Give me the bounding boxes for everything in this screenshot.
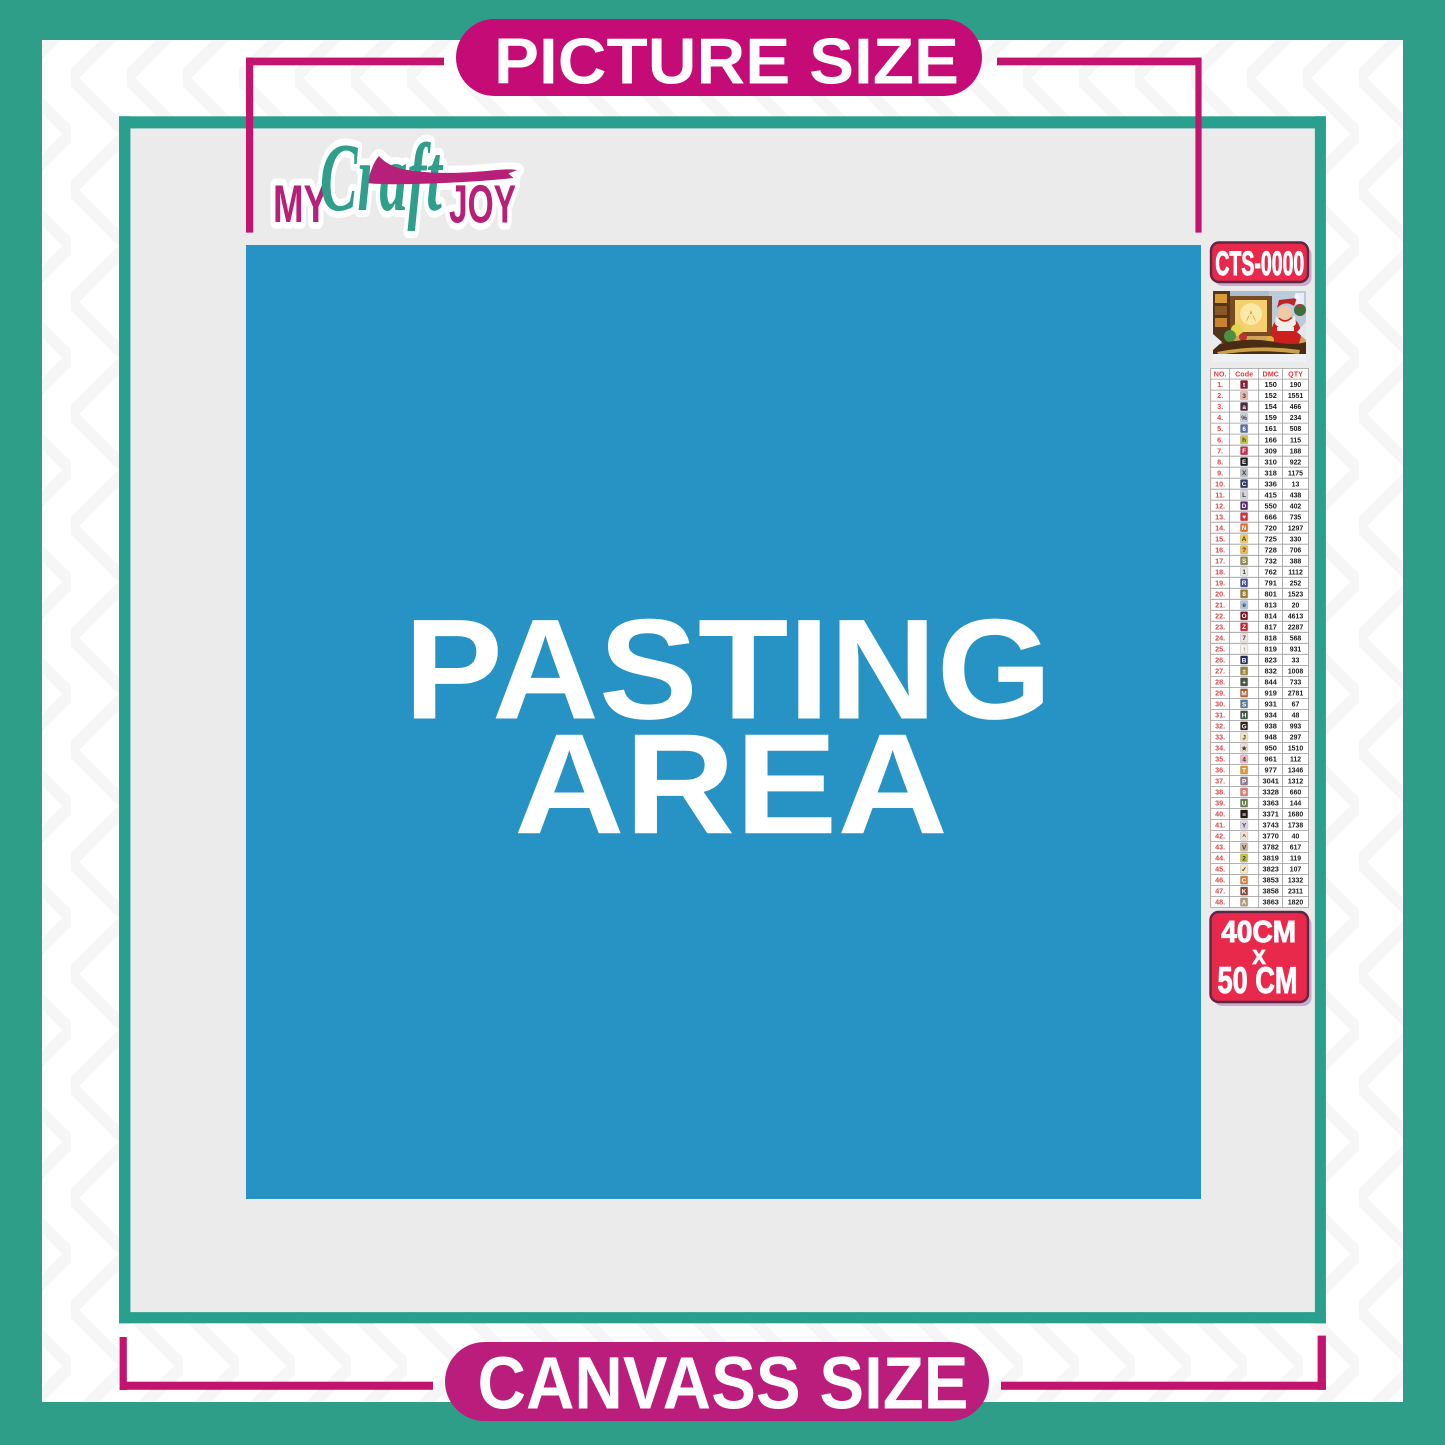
svg-text:1: 1 (1242, 569, 1246, 576)
svg-text:844: 844 (1265, 678, 1278, 687)
svg-text:950: 950 (1265, 744, 1277, 753)
svg-text:21.: 21. (1215, 600, 1225, 609)
svg-text:388: 388 (1290, 558, 1302, 565)
svg-text:3853: 3853 (1262, 876, 1278, 885)
svg-text:41.: 41. (1215, 821, 1225, 830)
svg-text:Y: Y (1242, 822, 1247, 829)
svg-text:48.: 48. (1215, 898, 1225, 907)
svg-text:336: 336 (1265, 479, 1277, 488)
svg-text:≡: ≡ (1242, 811, 1246, 818)
svg-text:QTY: QTY (1288, 369, 1303, 378)
svg-text:309: 309 (1265, 446, 1277, 455)
svg-text:791: 791 (1265, 578, 1277, 587)
svg-text:2: 2 (1242, 855, 1246, 862)
svg-text:1551: 1551 (1288, 393, 1303, 400)
svg-text:27.: 27. (1215, 667, 1225, 676)
svg-text:144: 144 (1290, 801, 1302, 808)
svg-text:35.: 35. (1215, 755, 1225, 764)
svg-text:3863: 3863 (1262, 898, 1278, 907)
svg-text:415: 415 (1265, 490, 1277, 499)
svg-text:9.: 9. (1217, 468, 1223, 477)
svg-text:1820: 1820 (1288, 900, 1303, 907)
svg-text:A: A (1242, 900, 1247, 907)
svg-text:2781: 2781 (1288, 691, 1303, 698)
svg-text:46.: 46. (1215, 876, 1225, 885)
svg-text:9: 9 (1242, 789, 1246, 796)
svg-text:Code: Code (1235, 369, 1253, 378)
svg-text:4.: 4. (1217, 413, 1223, 422)
svg-text:F: F (1242, 448, 1246, 455)
svg-text:40: 40 (1292, 834, 1300, 841)
svg-text:P: P (1242, 778, 1247, 785)
svg-text:C: C (1242, 878, 1247, 885)
svg-text:h: h (1242, 437, 1246, 444)
svg-text:%: % (1241, 415, 1247, 422)
svg-text:112: 112 (1290, 757, 1301, 764)
svg-text:+: + (1242, 679, 1246, 686)
svg-text:PICTURE SIZE: PICTURE SIZE (494, 25, 959, 98)
svg-text:318: 318 (1265, 468, 1277, 477)
svg-text:234: 234 (1290, 415, 1302, 422)
svg-text:119: 119 (1290, 856, 1301, 863)
svg-text:45.: 45. (1215, 865, 1225, 874)
svg-text:23.: 23. (1215, 622, 1225, 631)
svg-text:3: 3 (1242, 393, 1246, 400)
svg-text:42.: 42. (1215, 832, 1225, 841)
svg-text:14.: 14. (1215, 523, 1225, 532)
svg-text:1738: 1738 (1288, 823, 1303, 830)
svg-text:★: ★ (1240, 745, 1247, 752)
svg-text:37.: 37. (1215, 777, 1225, 786)
svg-text:115: 115 (1290, 437, 1301, 444)
svg-text:814: 814 (1265, 611, 1278, 620)
svg-text:✓: ✓ (1241, 866, 1246, 873)
svg-text:931: 931 (1290, 646, 1302, 653)
svg-text:617: 617 (1290, 845, 1302, 852)
svg-text:30.: 30. (1215, 700, 1225, 709)
svg-text:R: R (1242, 580, 1247, 587)
svg-text:V: V (1242, 844, 1247, 851)
svg-text:297: 297 (1290, 735, 1302, 742)
svg-text:1346: 1346 (1288, 768, 1303, 775)
svg-text:13.: 13. (1215, 512, 1225, 521)
svg-text:15.: 15. (1215, 534, 1225, 543)
svg-text:735: 735 (1290, 514, 1302, 521)
svg-text:40CM: 40CM (1221, 914, 1296, 949)
svg-text:161: 161 (1265, 424, 1277, 433)
svg-text:1112: 1112 (1288, 569, 1303, 576)
svg-text:28.: 28. (1215, 678, 1225, 687)
svg-text:1175: 1175 (1288, 470, 1303, 477)
svg-text:26.: 26. (1215, 656, 1225, 665)
svg-text:2287: 2287 (1288, 624, 1303, 631)
svg-text:E: E (1242, 459, 1247, 466)
svg-text:C: C (1242, 481, 1247, 488)
svg-text:466: 466 (1290, 404, 1302, 411)
svg-text:1.: 1. (1217, 380, 1223, 389)
svg-text:166: 166 (1265, 435, 1277, 444)
svg-text:922: 922 (1290, 459, 1302, 466)
svg-text:813: 813 (1265, 600, 1277, 609)
svg-text:G: G (1242, 723, 1247, 730)
svg-text:819: 819 (1265, 644, 1277, 653)
svg-text:♥: ♥ (1242, 514, 1246, 521)
svg-text:1008: 1008 (1288, 669, 1303, 676)
svg-text:666: 666 (1265, 512, 1277, 521)
svg-text:993: 993 (1290, 724, 1302, 731)
svg-text:43.: 43. (1215, 843, 1225, 852)
svg-text:±: ± (1242, 668, 1246, 675)
svg-text:17.: 17. (1215, 556, 1225, 565)
svg-text:O: O (1242, 613, 1247, 620)
svg-text:934: 934 (1265, 711, 1278, 720)
svg-text:J: J (1242, 734, 1246, 741)
svg-text:JOY: JOY (449, 175, 516, 235)
svg-text:↑: ↑ (1242, 646, 1245, 653)
svg-text:6: 6 (1242, 426, 1246, 433)
svg-text:330: 330 (1290, 536, 1302, 543)
svg-text:4613: 4613 (1288, 613, 1303, 620)
svg-text:47.: 47. (1215, 887, 1225, 896)
svg-text:919: 919 (1265, 689, 1277, 698)
svg-text:AREA: AREA (514, 705, 948, 864)
svg-text:8: 8 (1242, 591, 1246, 598)
svg-text:961: 961 (1265, 755, 1277, 764)
svg-text:^: ^ (1242, 832, 1246, 840)
svg-text:25.: 25. (1215, 644, 1225, 653)
svg-text:D: D (1242, 503, 1247, 510)
svg-text:1523: 1523 (1288, 591, 1303, 598)
svg-text:817: 817 (1265, 622, 1277, 631)
svg-text:A: A (1242, 536, 1247, 543)
svg-text:152: 152 (1265, 391, 1277, 400)
svg-text:19.: 19. (1215, 578, 1225, 587)
svg-text:1510: 1510 (1288, 746, 1303, 753)
svg-text:438: 438 (1290, 492, 1302, 499)
svg-text:5.: 5. (1217, 424, 1223, 433)
svg-text:3371: 3371 (1262, 810, 1278, 819)
svg-text:B: B (1242, 657, 1247, 664)
svg-text:39.: 39. (1215, 799, 1225, 808)
svg-text:252: 252 (1290, 580, 1302, 587)
svg-text:190: 190 (1290, 382, 1302, 389)
svg-text:16.: 16. (1215, 545, 1225, 554)
svg-text:188: 188 (1290, 448, 1302, 455)
svg-text:67: 67 (1292, 702, 1300, 709)
svg-text:a: a (1242, 404, 1246, 411)
svg-text:Z: Z (1242, 624, 1246, 631)
svg-text:36.: 36. (1215, 766, 1225, 775)
svg-text:e: e (1242, 602, 1246, 609)
svg-text:931: 931 (1265, 700, 1277, 709)
svg-text:10.: 10. (1215, 479, 1225, 488)
svg-text:310: 310 (1265, 457, 1277, 466)
svg-text:29.: 29. (1215, 689, 1225, 698)
svg-text:H: H (1242, 712, 1247, 719)
svg-text:T: T (1242, 767, 1246, 774)
svg-text:150: 150 (1265, 380, 1277, 389)
svg-text:728: 728 (1265, 545, 1277, 554)
svg-text:34.: 34. (1215, 744, 1225, 753)
svg-text:3770: 3770 (1262, 832, 1278, 841)
svg-text:3782: 3782 (1262, 843, 1278, 852)
svg-text:N: N (1242, 525, 1247, 532)
svg-text:40.: 40. (1215, 810, 1225, 819)
svg-text:7: 7 (1242, 635, 1246, 642)
svg-text:22.: 22. (1215, 611, 1225, 620)
svg-text:4: 4 (1242, 756, 1246, 763)
svg-text:S: S (1242, 558, 1247, 565)
svg-text:K: K (1242, 889, 1247, 896)
svg-text:?: ? (1242, 547, 1246, 554)
svg-text:U: U (1242, 800, 1247, 807)
svg-text:977: 977 (1265, 766, 1277, 775)
svg-text:3363: 3363 (1262, 799, 1278, 808)
svg-text:M: M (1241, 690, 1246, 697)
svg-text:24.: 24. (1215, 633, 1225, 642)
svg-text:3858: 3858 (1262, 887, 1278, 896)
svg-text:823: 823 (1265, 656, 1277, 665)
svg-text:154: 154 (1265, 402, 1278, 411)
svg-text:402: 402 (1290, 503, 1302, 510)
svg-text:33: 33 (1292, 658, 1300, 665)
svg-text:S: S (1242, 701, 1247, 708)
svg-text:706: 706 (1290, 547, 1302, 554)
svg-text:568: 568 (1290, 635, 1302, 642)
svg-text:3819: 3819 (1262, 854, 1278, 863)
svg-text:1680: 1680 (1288, 812, 1303, 819)
svg-text:NO.: NO. (1214, 369, 1227, 378)
svg-text:12.: 12. (1215, 501, 1225, 510)
svg-text:725: 725 (1265, 534, 1277, 543)
svg-text:CTS-0000: CTS-0000 (1215, 245, 1304, 283)
svg-text:33.: 33. (1215, 733, 1225, 742)
svg-text:48: 48 (1292, 713, 1300, 720)
svg-text:X: X (1242, 470, 1247, 477)
svg-text:3823: 3823 (1262, 865, 1278, 874)
svg-text:44.: 44. (1215, 854, 1225, 863)
svg-text:7.: 7. (1217, 446, 1223, 455)
svg-text:107: 107 (1290, 867, 1302, 874)
svg-text:31.: 31. (1215, 711, 1225, 720)
svg-text:818: 818 (1265, 633, 1277, 642)
svg-text:801: 801 (1265, 589, 1277, 598)
svg-text:1297: 1297 (1288, 525, 1303, 532)
svg-text:832: 832 (1265, 667, 1277, 676)
svg-text:6.: 6. (1217, 435, 1223, 444)
svg-text:938: 938 (1265, 722, 1277, 731)
svg-text:20: 20 (1292, 602, 1300, 609)
svg-text:11.: 11. (1215, 490, 1225, 499)
svg-text:2.: 2. (1217, 391, 1223, 400)
svg-text:2311: 2311 (1288, 889, 1303, 896)
svg-text:3743: 3743 (1262, 821, 1278, 830)
svg-text:508: 508 (1290, 426, 1302, 433)
svg-text:1332: 1332 (1288, 878, 1303, 885)
svg-text:8.: 8. (1217, 457, 1223, 466)
svg-text:1312: 1312 (1288, 779, 1303, 786)
svg-text:20.: 20. (1215, 589, 1225, 598)
svg-text:32.: 32. (1215, 722, 1225, 731)
svg-text:3041: 3041 (1262, 777, 1278, 786)
svg-text:3328: 3328 (1262, 788, 1278, 797)
svg-text:550: 550 (1265, 501, 1277, 510)
svg-text:720: 720 (1265, 523, 1277, 532)
svg-text:733: 733 (1290, 680, 1302, 687)
svg-text:762: 762 (1265, 567, 1277, 576)
svg-text:159: 159 (1265, 413, 1277, 422)
svg-text:18.: 18. (1215, 567, 1225, 576)
svg-text:L: L (1242, 492, 1246, 499)
svg-text:948: 948 (1265, 733, 1277, 742)
svg-text:660: 660 (1290, 790, 1302, 797)
svg-text:CANVASS SIZE: CANVASS SIZE (478, 1342, 969, 1425)
svg-text:732: 732 (1265, 556, 1277, 565)
svg-text:50 CM: 50 CM (1218, 960, 1298, 1001)
svg-text:3.: 3. (1217, 402, 1223, 411)
svg-text:38.: 38. (1215, 788, 1225, 797)
svg-text:DMC: DMC (1263, 369, 1279, 378)
svg-text:13: 13 (1292, 481, 1300, 488)
